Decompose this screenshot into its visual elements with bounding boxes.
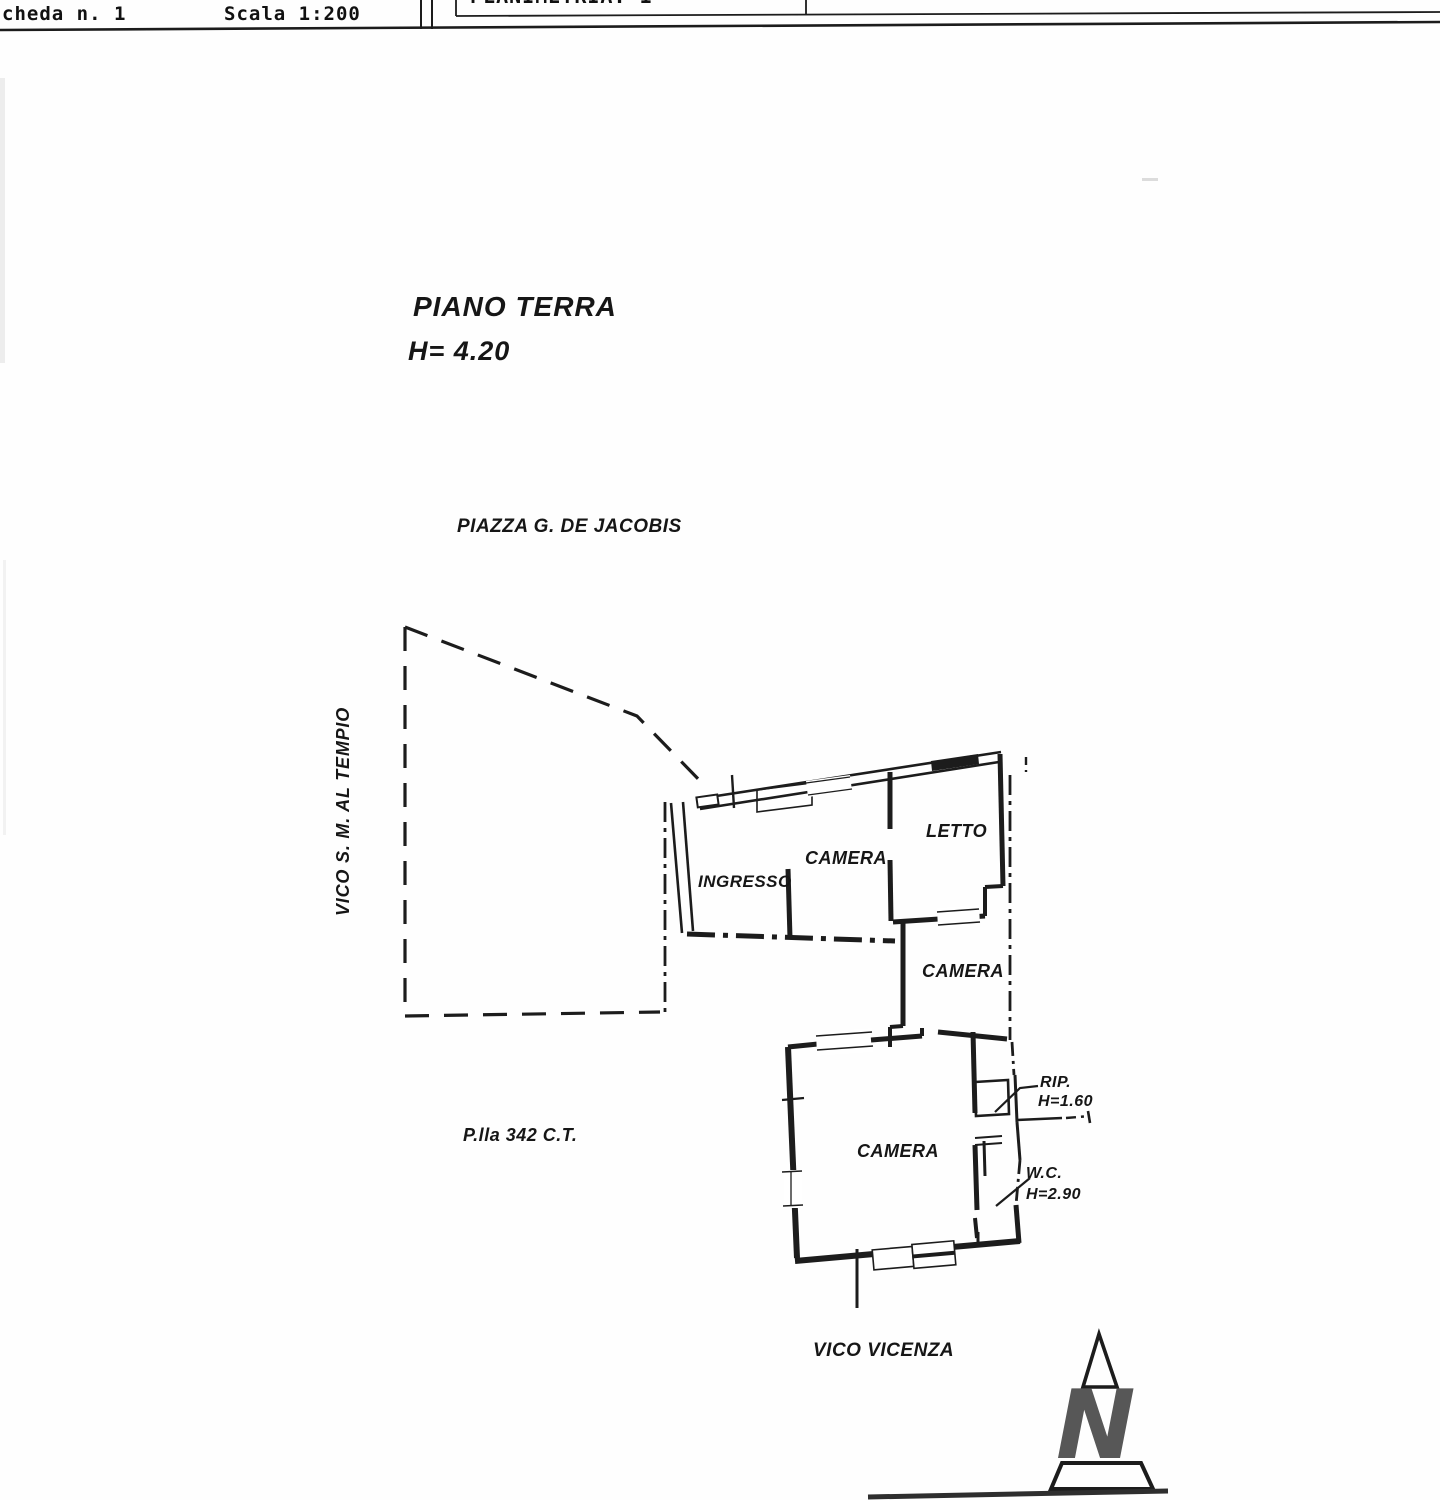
floor-title: PIANO TERRA [413,291,617,323]
street-label-vico-vicenza: VICO VICENZA [813,1340,954,1362]
room-label-wc: W.C. [1026,1165,1062,1183]
room-label-wc-height: H=2.90 [1026,1186,1081,1204]
header-rules [0,0,1440,30]
parcel-label: P.lla 342 C.T. [463,1125,577,1146]
scan-artifacts [0,78,1158,835]
room-label-rip-height: H=1.60 [1038,1093,1093,1111]
room-label-camera-top: CAMERA [805,848,887,869]
room-label-camera-mid: CAMERA [922,961,1004,982]
room-label-rip: RIP. [1040,1074,1071,1092]
room-label-ingresso: INGRESSO [698,872,792,892]
floor-height: H= 4.20 [408,336,510,367]
planimetria-label: PLANIMETRIA: 1 [470,0,653,8]
floorplan-drawing: N [0,0,1440,1500]
street-label-vico-tempio: VICO S. M. AL TEMPIO [333,707,354,916]
building-top-block [671,752,1003,941]
street-label-piazza: PIAZZA G. DE JACOBIS [457,516,682,538]
scale-label: Scala 1:200 [224,3,361,25]
scale-bar-line [868,1491,1168,1497]
scheda-number-label: cheda n. 1 [2,3,126,25]
wc-leader-line [996,1178,1030,1206]
courtyard-outline [405,627,705,1016]
scanned-floorplan-page: N cheda n. 1 Scala 1:200 PLANIMETRIA: 1 … [0,0,1440,1500]
room-label-letto: LETTO [926,821,987,842]
building-middle-camera [890,921,1007,1047]
room-label-camera-main: CAMERA [857,1141,939,1162]
